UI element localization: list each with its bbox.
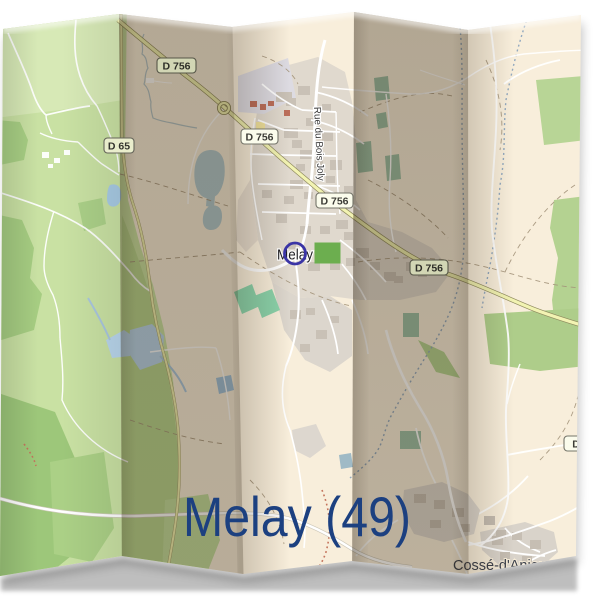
svg-text:D 756: D 756 bbox=[162, 61, 190, 73]
svg-text:D 756: D 756 bbox=[415, 263, 443, 275]
svg-text:D 65: D 65 bbox=[108, 141, 130, 153]
svg-text:Melay (49): Melay (49) bbox=[183, 485, 411, 548]
svg-text:D 756: D 756 bbox=[245, 132, 273, 144]
svg-text:D 756: D 756 bbox=[320, 196, 348, 208]
